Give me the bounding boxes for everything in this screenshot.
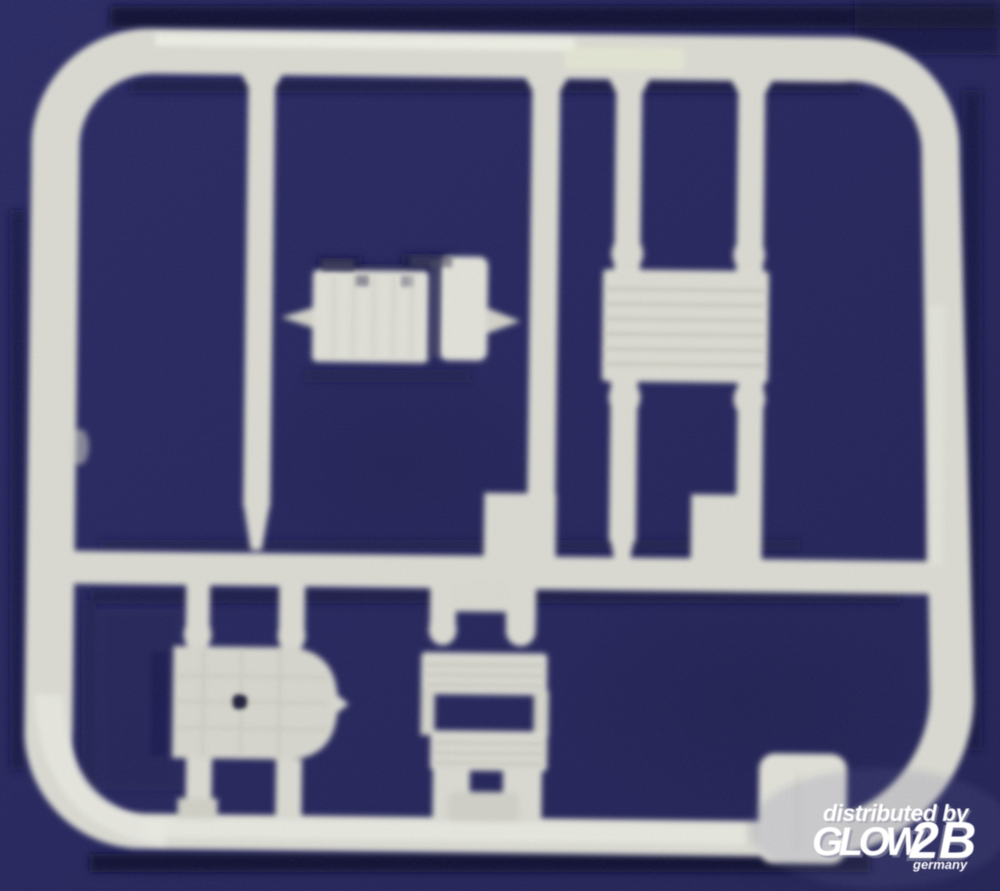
svg-text:germany: germany (912, 857, 968, 872)
